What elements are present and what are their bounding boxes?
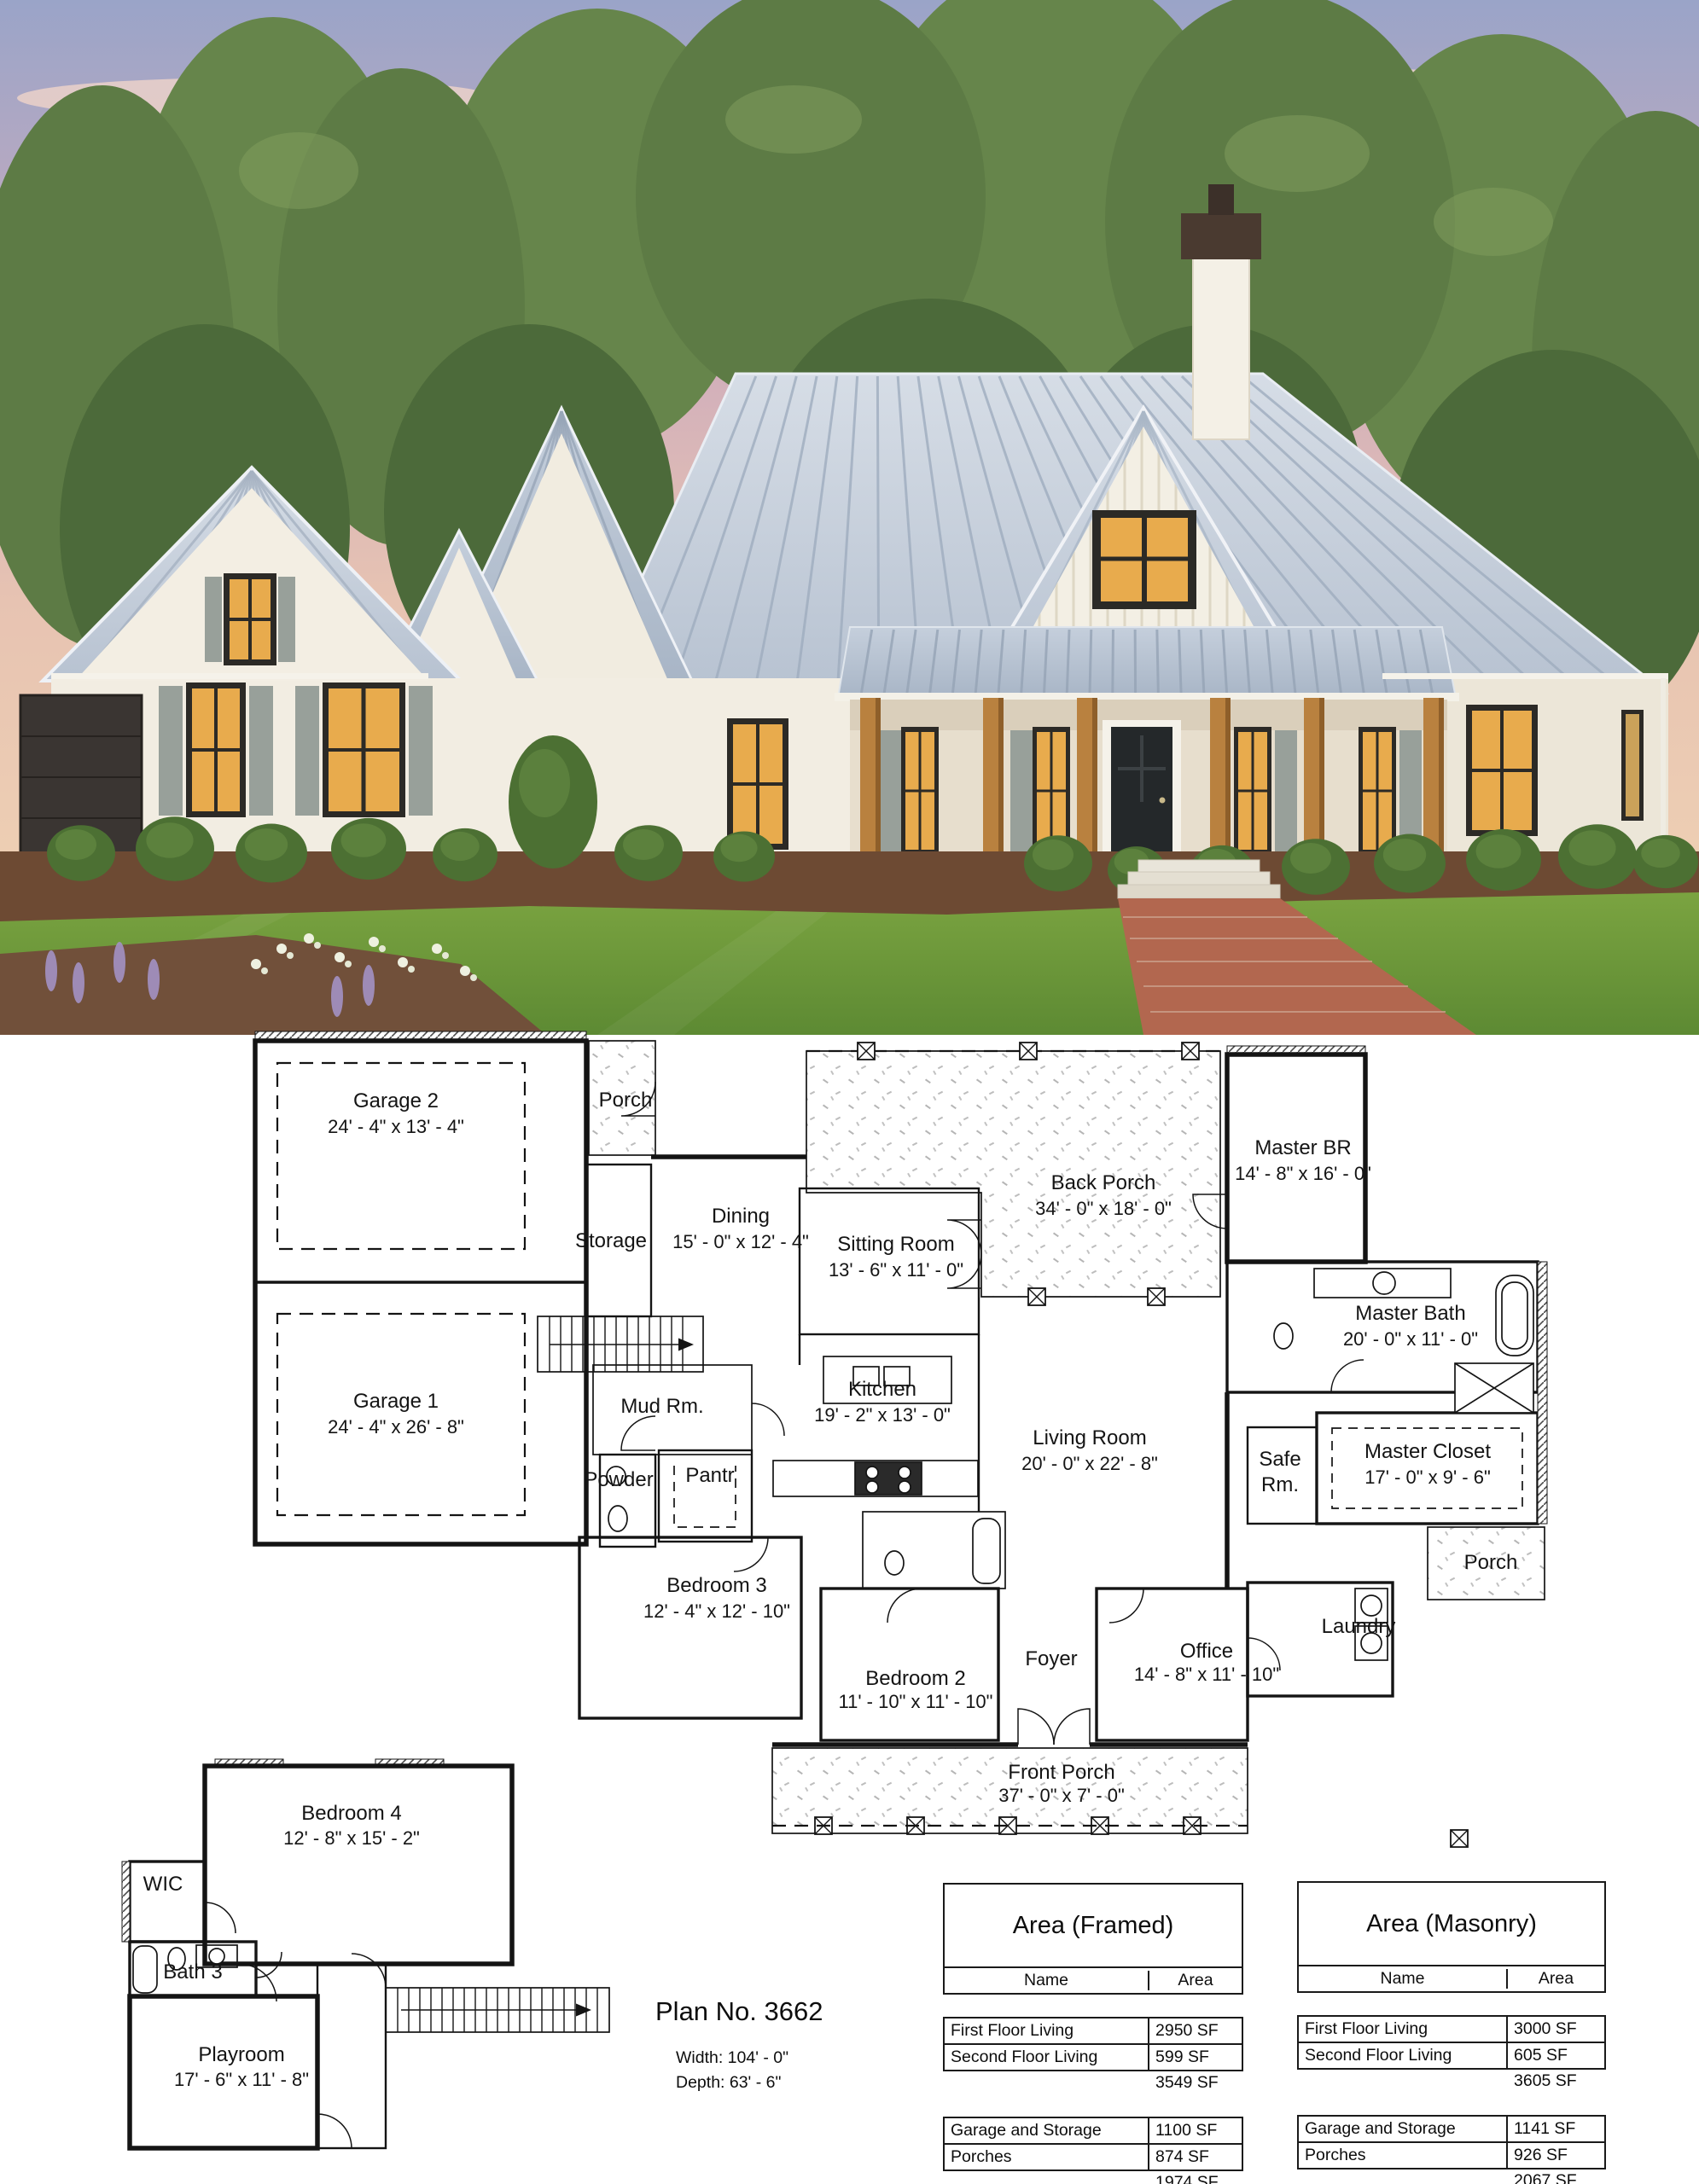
room-dims-master-br: 14' - 8" x 16' - 0" [1235, 1163, 1371, 1184]
table-group: First Floor Living2950 SFSecond Floor Li… [943, 2017, 1243, 2071]
room-label-back-porch: Back Porch [1051, 1171, 1156, 1194]
first-floor-plan [255, 1031, 1547, 1847]
table-row: Garage and Storage1141 SF [1299, 2117, 1604, 2141]
room-label-living-room: Living Room [1033, 1426, 1146, 1449]
area-table-masonry: Area (Masonry)NameAreaFirst Floor Living… [1297, 1881, 1606, 2184]
room-label-powder: Powder [584, 1468, 653, 1491]
cell-name: Second Floor Living [1299, 2043, 1508, 2068]
room-dims-living-room: 20' - 0" x 22' - 8" [1021, 1453, 1158, 1474]
cell-area: 605 SF [1508, 2046, 1604, 2065]
cell-name: Porches [945, 2145, 1149, 2169]
plan-info: Plan No. 3662 Width: 104' - 0" Depth: 63… [655, 1996, 946, 2096]
house-plan-sheet: Garage 224' - 4" x 13' - 4"Garage 124' -… [0, 0, 1699, 2184]
col-name: Name [1299, 1969, 1508, 1989]
subtotal-value: 3549 SF [1155, 2073, 1219, 2093]
room-label-bedroom-4: Bedroom 4 [301, 1802, 401, 1825]
cell-name: First Floor Living [945, 2018, 1149, 2043]
cell-name: Second Floor Living [945, 2045, 1149, 2070]
room-label-porch-top: Porch [599, 1089, 653, 1112]
room-label-wic: WIC [143, 1873, 183, 1896]
cell-name: Garage and Storage [945, 2118, 1149, 2143]
table-row: First Floor Living2950 SF [945, 2018, 1242, 2043]
room-label-playroom: Playroom [198, 2043, 284, 2066]
room-label-mud-rm: Mud Rm. [620, 1395, 703, 1418]
room-label-kitchen: Kitchen [848, 1378, 916, 1401]
table-row: Garage and Storage1100 SF [945, 2118, 1242, 2143]
table-title: Area (Masonry) [1299, 1883, 1604, 1966]
cell-area: 874 SF [1149, 2147, 1242, 2167]
col-area: Area [1149, 1971, 1242, 1990]
table-row: Porches874 SF [945, 2143, 1242, 2169]
room-label-garage-2: Garage 2 [353, 1089, 439, 1112]
plan-width: Width: 104' - 0" [676, 2046, 946, 2071]
room-label-safe-rm: Safe [1259, 1448, 1300, 1471]
group-subtotal: 2067 SF [1297, 2169, 1606, 2184]
plan-number: Plan No. 3662 [655, 1996, 946, 2027]
room-dims-dining: 15' - 0" x 12' - 4" [672, 1231, 809, 1252]
room-dims-office: 14' - 8" x 11' - 10" [1134, 1664, 1279, 1685]
room-label-foyer: Foyer [1025, 1647, 1077, 1670]
group-subtotal: 1974 SF [943, 2171, 1243, 2184]
cell-area: 3000 SF [1508, 2019, 1604, 2039]
room-dims-master-closet: 17' - 0" x 9' - 6" [1364, 1467, 1491, 1488]
room-dims-front-porch: 37' - 0" x 7' - 0" [998, 1785, 1125, 1806]
table-columns: NameArea [1299, 1966, 1604, 1991]
table-row: Second Floor Living605 SF [1299, 2042, 1604, 2068]
subtotal-value: 2067 SF [1514, 2171, 1577, 2184]
table-row: First Floor Living3000 SF [1299, 2017, 1604, 2042]
room-label-bath-3: Bath 3 [163, 1960, 222, 1984]
cell-area: 599 SF [1149, 2047, 1242, 2067]
room-label-dining: Dining [712, 1205, 770, 1228]
subtotal-value: 3605 SF [1514, 2071, 1577, 2091]
cell-name: Garage and Storage [1299, 2117, 1508, 2141]
table-columns: NameArea [945, 1968, 1242, 1993]
room-dims-bedroom-2: 11' - 10" x 11' - 10" [839, 1691, 993, 1712]
table-row: Second Floor Living599 SF [945, 2043, 1242, 2070]
col-area: Area [1508, 1969, 1604, 1989]
table-group: Garage and Storage1141 SFPorches926 SF [1297, 2115, 1606, 2169]
subtotal-value: 1974 SF [1155, 2173, 1219, 2184]
room-label-master-br: Master BR [1254, 1136, 1351, 1159]
room-dims-garage-2: 24' - 4" x 13' - 4" [328, 1116, 464, 1137]
cell-area: 1100 SF [1149, 2121, 1242, 2140]
room-label-master-closet: Master Closet [1364, 1440, 1491, 1463]
room-dims-bedroom-3: 12' - 4" x 12' - 10" [643, 1600, 790, 1622]
table-group: Garage and Storage1100 SFPorches874 SF [943, 2117, 1243, 2171]
room-label-sitting-room: Sitting Room [837, 1233, 954, 1256]
cell-area: 1141 SF [1508, 2119, 1604, 2139]
room-label-storage: Storage [575, 1229, 647, 1252]
room-label-porch-right: Porch [1464, 1551, 1518, 1574]
room-label-safe-rm: Rm. [1261, 1473, 1299, 1496]
room-dims-back-porch: 34' - 0" x 18' - 0" [1035, 1198, 1172, 1219]
room-label-bedroom-3: Bedroom 3 [666, 1574, 766, 1597]
cell-name: Porches [1299, 2143, 1508, 2168]
cell-area: 2950 SF [1149, 2021, 1242, 2041]
cell-name: First Floor Living [1299, 2017, 1508, 2042]
col-name: Name [945, 1971, 1149, 1990]
room-label-front-porch: Front Porch [1008, 1761, 1114, 1784]
table-group: First Floor Living3000 SFSecond Floor Li… [1297, 2015, 1606, 2070]
room-label-master-bath: Master Bath [1355, 1302, 1465, 1325]
room-label-office: Office [1180, 1640, 1233, 1663]
cell-area: 926 SF [1508, 2146, 1604, 2165]
room-label-garage-1: Garage 1 [353, 1390, 439, 1413]
table-header: Area (Masonry)NameArea [1297, 1881, 1606, 1993]
room-dims-master-bath: 20' - 0" x 11' - 0" [1343, 1328, 1478, 1350]
room-dims-bedroom-4: 12' - 8" x 15' - 2" [283, 1827, 420, 1849]
table-row: Porches926 SF [1299, 2141, 1604, 2168]
table-header: Area (Framed)NameArea [943, 1883, 1243, 1995]
table-title: Area (Framed) [945, 1885, 1242, 1968]
area-table-framed: Area (Framed)NameAreaFirst Floor Living2… [943, 1883, 1243, 2184]
room-dims-playroom: 17' - 6" x 11' - 8" [174, 2069, 309, 2090]
room-label-pantry: Pantr [685, 1464, 734, 1487]
room-dims-kitchen: 19' - 2" x 13' - 0" [814, 1404, 951, 1426]
floor-plan-drawing: Garage 224' - 4" x 13' - 4"Garage 124' -… [0, 0, 1699, 2184]
room-label-bedroom-2: Bedroom 2 [865, 1667, 965, 1690]
room-dims-garage-1: 24' - 4" x 26' - 8" [328, 1416, 464, 1438]
group-subtotal: 3605 SF [1297, 2070, 1606, 2093]
room-dims-sitting-room: 13' - 6" x 11' - 0" [829, 1259, 963, 1281]
plan-depth: Depth: 63' - 6" [676, 2071, 946, 2095]
group-subtotal: 3549 SF [943, 2071, 1243, 2094]
room-label-laundry: Laundry [1322, 1615, 1396, 1638]
